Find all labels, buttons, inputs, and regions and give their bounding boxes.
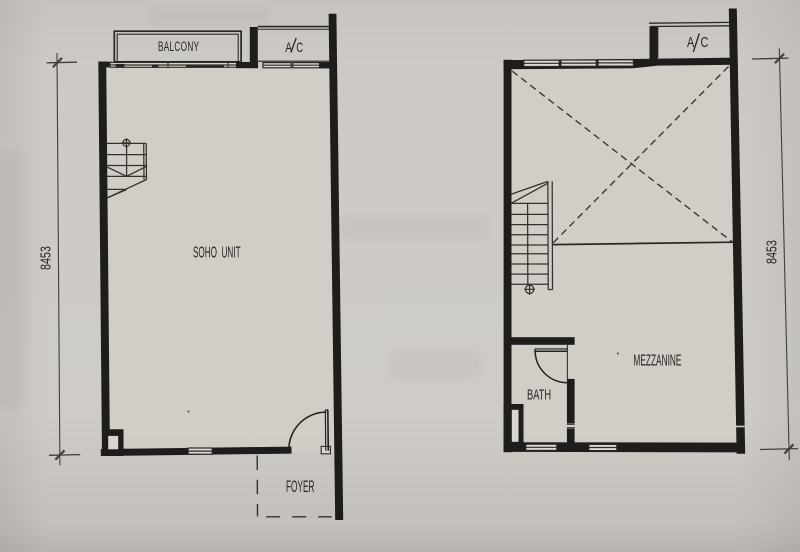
svg-text:8453: 8453 — [763, 240, 780, 264]
svg-text:A: A — [687, 34, 695, 51]
svg-text:C: C — [701, 34, 709, 51]
svg-text:MEZZANINE: MEZZANINE — [633, 350, 681, 369]
svg-text:C: C — [296, 40, 303, 55]
svg-text:BATH: BATH — [527, 386, 551, 403]
svg-text:8453: 8453 — [37, 246, 54, 270]
svg-text:A: A — [285, 40, 292, 56]
svg-text:BALCONY: BALCONY — [158, 40, 199, 55]
svg-text:SOHO UNIT: SOHO UNIT — [193, 244, 241, 262]
svg-text:FOYER: FOYER — [286, 477, 314, 496]
